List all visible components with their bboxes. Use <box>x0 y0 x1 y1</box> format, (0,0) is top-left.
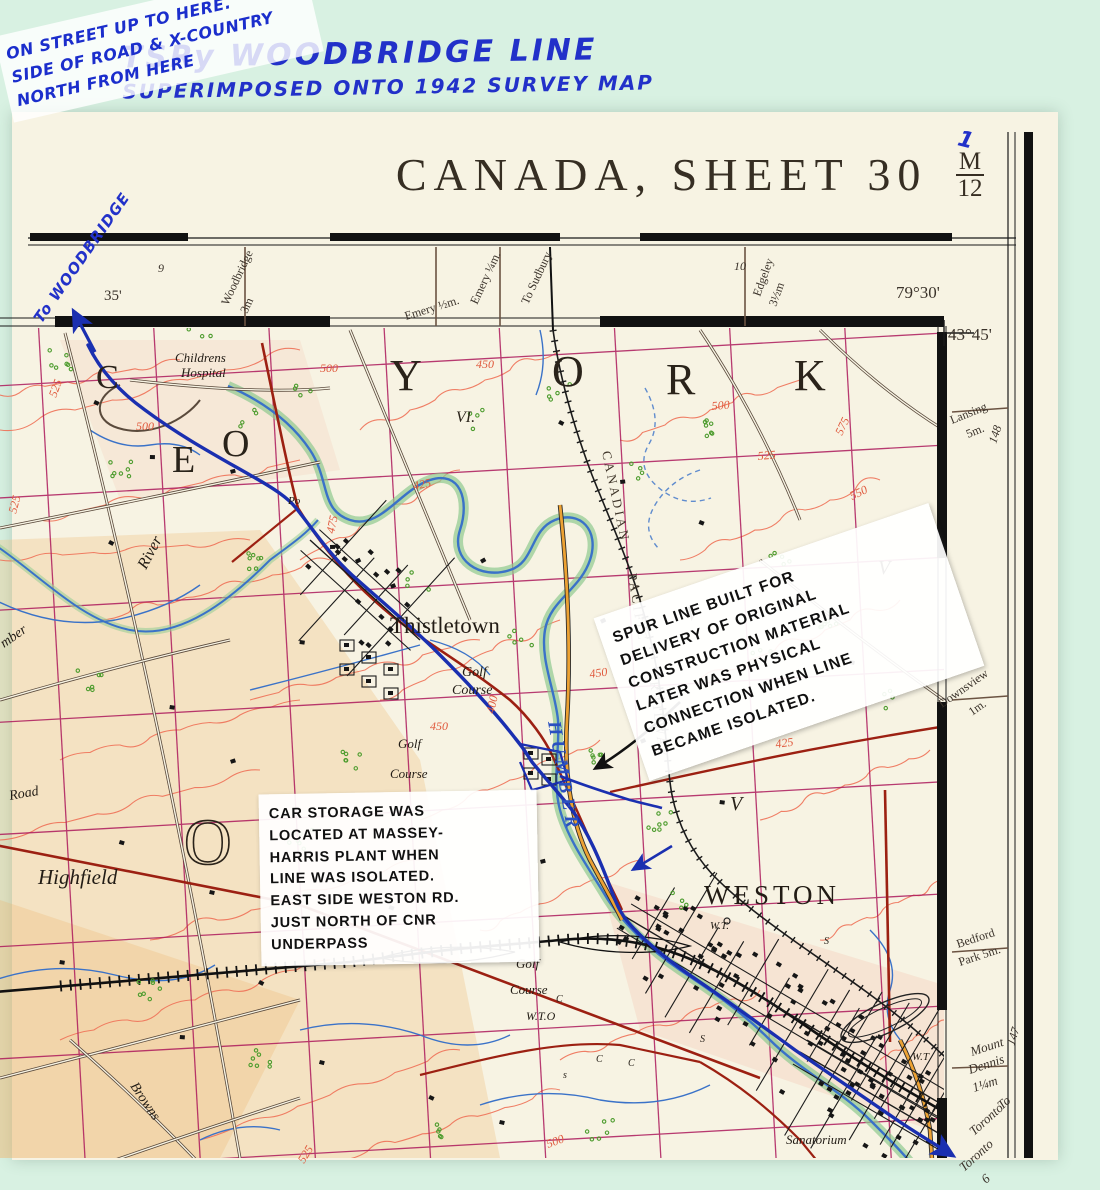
map-label: 35' <box>104 288 122 304</box>
map-label: 3m <box>237 295 256 315</box>
map-label: 450 <box>588 665 608 681</box>
sheet-number-fraction: M 12 <box>956 149 984 202</box>
map-label: Course <box>510 982 548 997</box>
map-label: 148 <box>986 423 1005 444</box>
map-label: 425 <box>412 475 433 492</box>
fraction-denominator: 12 <box>956 176 984 202</box>
map-label: 500 <box>544 1132 566 1151</box>
map-label: HUMBER <box>543 718 584 834</box>
map-label: 6 <box>978 1170 993 1186</box>
sheet-title: CANADA, SHEET 30 M 12 <box>370 148 1010 202</box>
map-label: 400 <box>483 694 500 715</box>
map-label: Y <box>390 351 422 400</box>
map-label: Childrens <box>175 350 226 365</box>
map-label: W.T <box>912 1051 930 1063</box>
map-label: 9 <box>158 261 164 275</box>
map-label: 450 <box>430 719 448 733</box>
map-label: Emery ¼m. <box>467 249 503 306</box>
map-label: Woodbridge <box>218 248 256 307</box>
sheet-title-text: CANADA, SHEET 30 <box>396 149 928 200</box>
map-label: O <box>184 806 232 879</box>
map-label: 525 <box>46 377 65 399</box>
map-label: 475 <box>323 514 340 535</box>
map-label: O <box>222 423 249 465</box>
map-label: K <box>794 351 826 400</box>
map-label: Golf <box>398 736 424 751</box>
map-label: 79°30' <box>896 283 940 302</box>
map-label: 550 <box>847 482 869 502</box>
map-label: 1¼m <box>970 1073 999 1095</box>
car-storage-note: CAR STORAGE WAS LOCATED AT MASSEY- HARRI… <box>259 790 540 967</box>
map-label: R <box>666 355 696 404</box>
map-label: Toronto <box>956 1136 996 1174</box>
map-label: 10 <box>734 259 746 273</box>
map-label: O <box>552 347 584 396</box>
map-label: 1m. <box>966 696 989 718</box>
map-label: E <box>172 439 195 481</box>
map-label: Thistletown <box>390 613 500 638</box>
map-label: S <box>824 936 829 947</box>
map-label: 450 <box>476 357 494 371</box>
map-label: VI. <box>456 409 475 426</box>
map-label: Toronto <box>966 1100 1006 1138</box>
map-label: WESTON <box>704 880 840 910</box>
map-label: 500 <box>320 361 338 375</box>
map-label: W.T. <box>710 920 729 932</box>
map-label: Golf <box>462 665 489 680</box>
map-label: s <box>563 1070 567 1081</box>
map-label: Lansing <box>948 399 989 426</box>
map-label: C <box>628 1058 635 1069</box>
map-label: Highfield <box>37 865 118 889</box>
map-label: 5m. <box>964 421 986 441</box>
map-label: C <box>596 1054 603 1065</box>
map-label: 43°45' <box>948 325 992 344</box>
map-label: Sanatorium <box>786 1132 847 1147</box>
map-label: 500 <box>136 419 154 433</box>
scanned-map-page: { "scan": { "handwritten_title_line1": "… <box>0 0 1100 1190</box>
map-label: 3½m <box>766 280 788 308</box>
map-label: 147 <box>1004 1025 1023 1047</box>
map-label: CANADIAN <box>599 450 633 544</box>
map-label: 500 <box>711 397 730 413</box>
map-label: W.T.O <box>526 1009 556 1023</box>
map-label: Po <box>287 495 301 507</box>
map-label: V <box>730 793 745 815</box>
map-label: Hospital <box>180 365 226 380</box>
map-label: Course <box>390 766 428 781</box>
fraction-numerator: M <box>956 149 984 177</box>
map-label: C <box>96 359 119 396</box>
map-label: S <box>700 1034 705 1045</box>
map-label: C <box>556 994 563 1005</box>
map-label: To Sudbury <box>518 249 554 306</box>
map-label: 525 <box>757 447 776 463</box>
map-label: 425 <box>774 735 794 751</box>
